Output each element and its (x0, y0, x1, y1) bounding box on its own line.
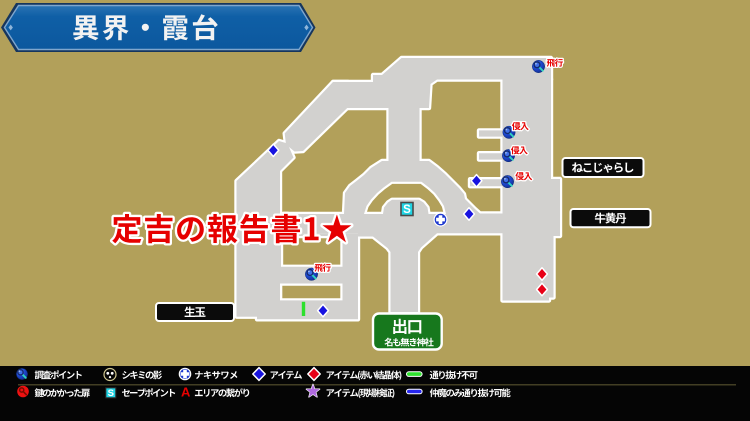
svg-text:S: S (403, 204, 411, 216)
svg-text:S: S (108, 388, 114, 399)
svg-text:A: A (181, 385, 191, 400)
